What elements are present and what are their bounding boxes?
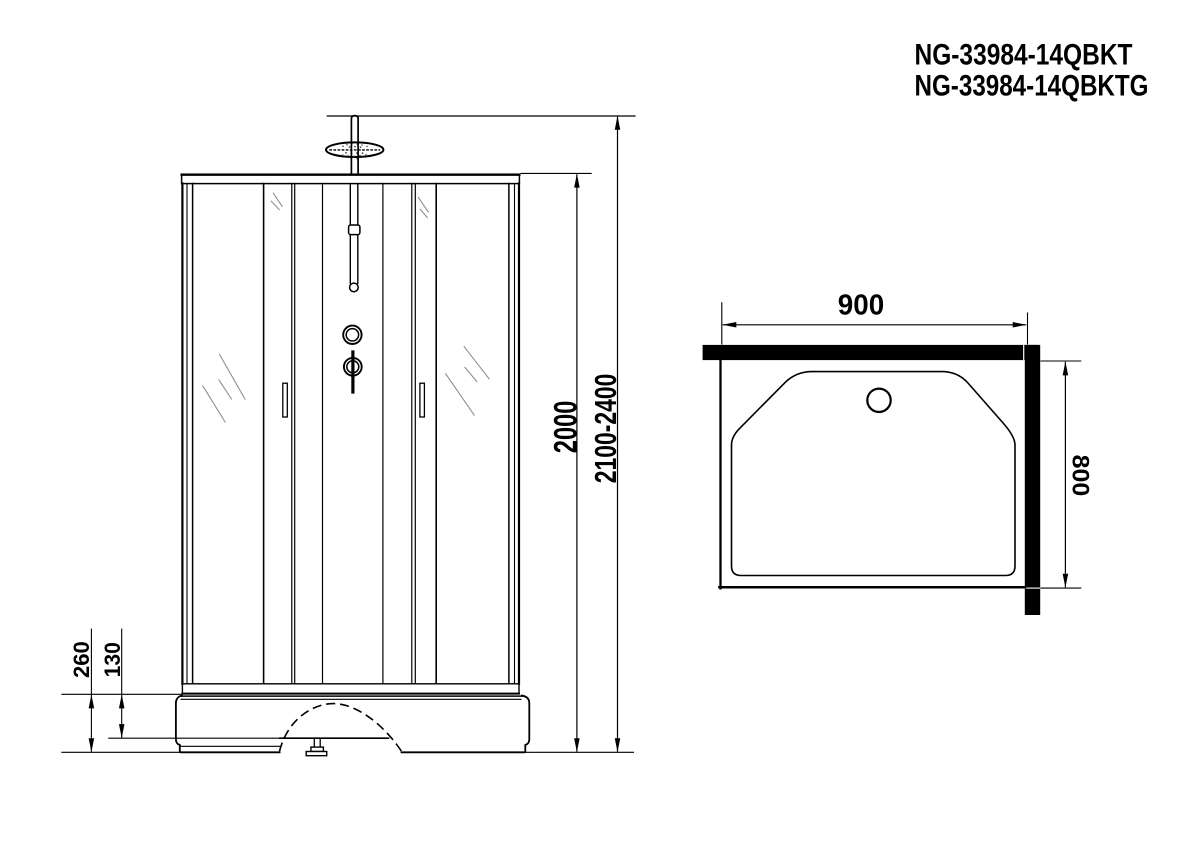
svg-text:800: 800 xyxy=(1066,455,1093,497)
svg-text:NG-33984-14QBKTG: NG-33984-14QBKTG xyxy=(915,70,1149,102)
svg-text:900: 900 xyxy=(838,289,884,321)
svg-text:130: 130 xyxy=(100,642,125,677)
svg-text:2100-2400: 2100-2400 xyxy=(588,374,623,484)
svg-text:260: 260 xyxy=(69,641,94,678)
svg-text:2000: 2000 xyxy=(547,401,583,454)
svg-text:NG-33984-14QBKT: NG-33984-14QBKT xyxy=(915,40,1133,72)
